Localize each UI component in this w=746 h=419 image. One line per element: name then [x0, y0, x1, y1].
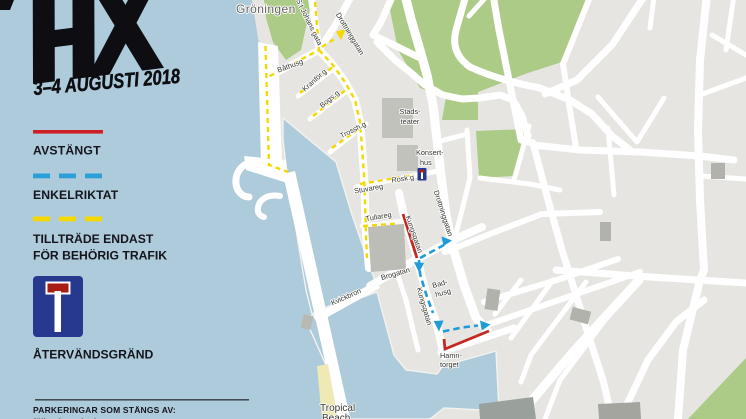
svg-text:teater: teater	[401, 117, 420, 126]
svg-text:hus: hus	[420, 158, 432, 167]
svg-text:ÅTERVÄNDSGRÄND: ÅTERVÄNDSGRÄND	[33, 347, 154, 362]
svg-text:FÖR BEHÖRIG TRAFIK: FÖR BEHÖRIG TRAFIK	[33, 248, 167, 263]
svg-text:Stads-: Stads-	[399, 107, 421, 116]
svg-text:AVSTÄNGT: AVSTÄNGT	[33, 142, 101, 157]
svg-text:Beach: Beach	[322, 413, 350, 419]
svg-text:torget: torget	[440, 360, 459, 369]
svg-text:Hamn-: Hamn-	[440, 351, 462, 360]
svg-text:Gröningen: Gröningen	[236, 2, 296, 16]
svg-text:Konsert-: Konsert-	[416, 148, 444, 157]
svg-text:TILLTRÄDE ENDAST: TILLTRÄDE ENDAST	[33, 231, 154, 246]
svg-text:ENKELRIKTAT: ENKELRIKTAT	[33, 188, 119, 202]
svg-text:PARKERINGAR SOM STÄNGS AV:: PARKERINGAR SOM STÄNGS AV:	[33, 405, 176, 415]
